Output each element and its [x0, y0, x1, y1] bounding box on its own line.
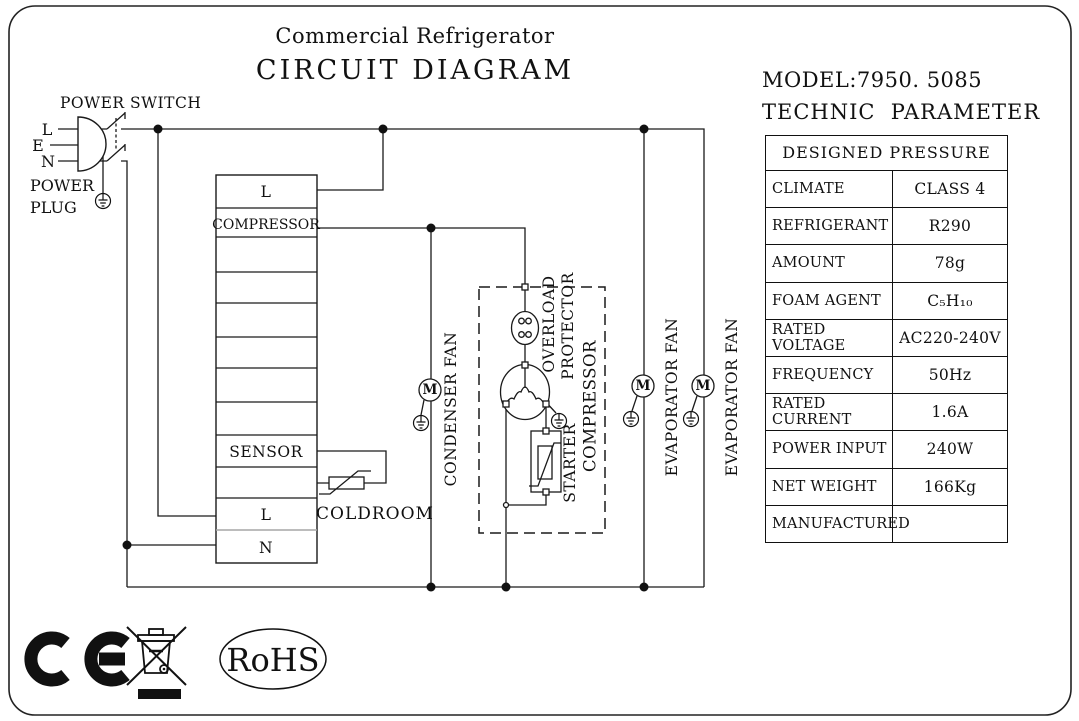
- starter-terminal-pin: [543, 489, 549, 495]
- row-label: NET WEIGHT: [766, 469, 893, 505]
- terminal-row-n-label: N: [259, 539, 273, 557]
- ce-letter-c: [31, 638, 66, 680]
- table-row: NET WEIGHT166Kg: [766, 468, 1007, 505]
- row-label: RATED VOLTAGE: [766, 320, 893, 356]
- row-label: AMOUNT: [766, 245, 893, 281]
- motor-m-label: M: [423, 382, 438, 398]
- terminal-row-l-label: L: [261, 183, 272, 201]
- pin-n-label: N: [41, 152, 55, 171]
- table-header-designed-pressure: DESIGNED PRESSURE: [766, 136, 1007, 170]
- power-plug-symbol: L E N: [32, 117, 106, 171]
- table-row: AMOUNT78g: [766, 244, 1007, 281]
- row-value: R290: [893, 208, 1007, 244]
- ptc-body: [538, 446, 552, 479]
- evaporator-fan1-label: EVAPORATOR FAN: [663, 318, 681, 477]
- row-value: CLASS 4: [893, 171, 1007, 207]
- table-row: RATED VOLTAGEAC220-240V: [766, 319, 1007, 356]
- motor-terminal-pin: [543, 401, 549, 407]
- bin-underline-bar: [138, 689, 181, 699]
- power-plug-label-line1: POWER: [30, 176, 95, 195]
- row-label: CLIMATE: [766, 171, 893, 207]
- power-switch-label: POWER SWITCH: [60, 94, 201, 112]
- row-value: 50Hz: [893, 357, 1007, 393]
- table-row: FREQUENCY50Hz: [766, 356, 1007, 393]
- row-value: [893, 506, 1007, 542]
- row-value: 1.6A: [893, 394, 1007, 430]
- thermistor-body: [329, 477, 364, 489]
- overload-protector-icon: [512, 312, 539, 345]
- row-value: 78g: [893, 245, 1007, 281]
- table-row: MANUFACTURED: [766, 505, 1007, 542]
- ground-icon: [96, 194, 111, 209]
- winding-junction-pin: [504, 503, 509, 508]
- l-terminal-wire: [317, 129, 383, 190]
- compressor-feed-wire: [317, 228, 525, 365]
- rohs-label: RoHS: [226, 641, 319, 679]
- condenser-fan-label: CONDENSER FAN: [442, 332, 460, 487]
- terminal-block: L COMPRESSOR SENSOR L N: [212, 175, 320, 563]
- technic-parameter-heading: TECHNIC PARAMETER: [762, 100, 1040, 124]
- row-value: 240W: [893, 431, 1007, 467]
- table-row: FOAM AGENTC₅H₁₀: [766, 282, 1007, 319]
- ground-icon: [414, 416, 429, 431]
- model-number: MODEL:7950. 5085: [762, 68, 982, 92]
- bin-lid-knob: [149, 629, 163, 635]
- row-label: FOAM AGENT: [766, 283, 893, 319]
- motor-m-label: M: [696, 378, 711, 394]
- row-value: 166Kg: [893, 469, 1007, 505]
- row-label: RATED CURRENT: [766, 394, 893, 430]
- motor-m-label: M: [636, 378, 651, 394]
- starter-terminal-pin: [543, 428, 549, 434]
- evaporator-fan2-label: EVAPORATOR FAN: [723, 318, 741, 477]
- overload-label-line1: OVERLOAD: [540, 275, 558, 372]
- weee-bin-icon: [127, 627, 186, 699]
- table-row: POWER INPUT240W: [766, 430, 1007, 467]
- motor-terminal-pin: [522, 362, 528, 368]
- enclosure-feed-pin: [522, 284, 528, 290]
- row-value: C₅H₁₀: [893, 283, 1007, 319]
- page-title-line1: Commercial Refrigerator: [240, 24, 590, 48]
- row-label: POWER INPUT: [766, 431, 893, 467]
- row-value: AC220-240V: [893, 320, 1007, 356]
- terminal-row-compressor-label: COMPRESSOR: [212, 217, 320, 233]
- page-title-line2: CIRCUIT DIAGRAM: [240, 55, 590, 86]
- compressor-label: COMPRESSOR: [581, 340, 600, 472]
- plug-body: [78, 117, 106, 171]
- starter-label: STARTER: [561, 422, 579, 502]
- row-label: REFRIGERANT: [766, 208, 893, 244]
- bin-wheel-hub: [163, 668, 166, 671]
- thermostat-live-wire: [158, 129, 216, 516]
- motor-terminal-pin: [503, 401, 509, 407]
- rohs-mark: RoHS: [220, 629, 326, 689]
- coldroom-label: COLDROOM: [316, 504, 434, 524]
- row-label: MANUFACTURED: [766, 506, 893, 542]
- ground-icon: [624, 412, 639, 427]
- terminal-row-l2-label: L: [261, 506, 272, 524]
- row-label: FREQUENCY: [766, 357, 893, 393]
- ground-connector-wires: [103, 151, 697, 415]
- overload-label-line2: PROTECTOR: [559, 271, 577, 379]
- refrigerator-circuit-label: L COMPRESSOR SENSOR L N L E N POWER SWIT…: [0, 0, 1079, 721]
- ground-icon: [684, 412, 699, 427]
- ce-mark-icon: [31, 638, 126, 680]
- table-row: CLIMATECLASS 4: [766, 170, 1007, 207]
- technic-parameter-table: DESIGNED PRESSURE CLIMATECLASS 4 REFRIGE…: [765, 135, 1008, 543]
- neutral-drop-wire: [121, 161, 127, 587]
- table-row: RATED CURRENT1.6A: [766, 393, 1007, 430]
- terminal-row-sensor-label: SENSOR: [229, 443, 303, 461]
- table-row: REFRIGERANTR290: [766, 207, 1007, 244]
- power-plug-label-line2: PLUG: [30, 198, 77, 217]
